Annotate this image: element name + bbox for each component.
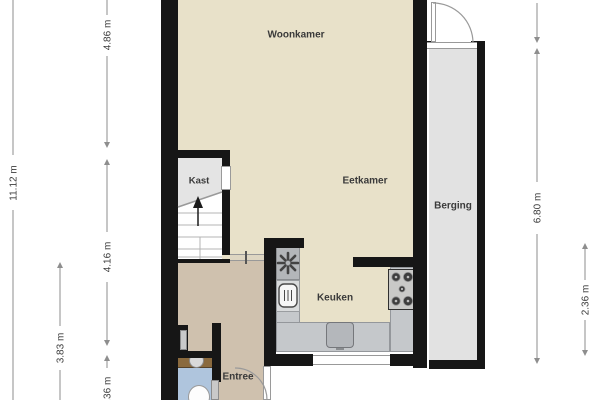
- wall-stair-bottom: [178, 259, 230, 263]
- room-label-keuken: Keuken: [317, 293, 353, 304]
- wall-wc-top: [178, 351, 212, 358]
- wall-wc-right: [212, 323, 221, 382]
- berging-door-panel: [431, 2, 436, 42]
- room-label-eetkamer: Eetkamer: [342, 176, 387, 187]
- window-kitchen: [313, 355, 390, 365]
- dimension-label-bottom: 1.36 m: [103, 377, 114, 400]
- wall-berging-bottom: [429, 360, 485, 369]
- wall-kitchen-bottom-left: [264, 354, 313, 366]
- entree-door-panel: [263, 366, 271, 400]
- wall-dining-right-stub: [353, 257, 427, 267]
- dimension-label-hall: 3.83 m: [56, 333, 67, 364]
- wall-kast-top: [161, 150, 230, 158]
- wc-door-panel: [211, 380, 219, 400]
- floorplan-canvas: Woonkamer Eetkamer Kast Keuken Entree Be…: [0, 0, 600, 400]
- wall-berging-right: [477, 41, 485, 369]
- dimension-label-middle: 4.16 m: [103, 242, 114, 273]
- dimension-label-upper: 4.86 m: [103, 20, 114, 51]
- wall-kitchen-bottom-right: [390, 354, 427, 366]
- room-label-berging: Berging: [434, 201, 472, 212]
- dimension-label-berging-lower: 2.36 m: [581, 285, 592, 316]
- room-label-entree: Entree: [222, 372, 253, 383]
- threshold-tick: [245, 251, 247, 264]
- room-label-woonkamer: Woonkamer: [267, 30, 324, 41]
- threshold-berging-door: [427, 42, 477, 49]
- wall-right: [413, 0, 427, 368]
- wc-entry-door-panel: [180, 330, 187, 350]
- dimension-label-total-height: 11.12 m: [9, 165, 20, 200]
- threshold-dining-hall: [230, 254, 264, 261]
- oven-box: [276, 280, 300, 312]
- room-label-kast: Kast: [189, 176, 210, 187]
- wall-left: [161, 0, 178, 400]
- kast-door-panel: [221, 166, 231, 190]
- extractor-fan-box: [276, 246, 300, 280]
- dimension-label-berging-full: 6.80 m: [533, 193, 544, 224]
- wall-kitchen-top-stub: [264, 238, 304, 248]
- kitchen-sink: [326, 322, 354, 348]
- wall-kitchen-left: [264, 238, 276, 359]
- berging-door-arc: [433, 3, 473, 43]
- stove-hob: [388, 269, 416, 310]
